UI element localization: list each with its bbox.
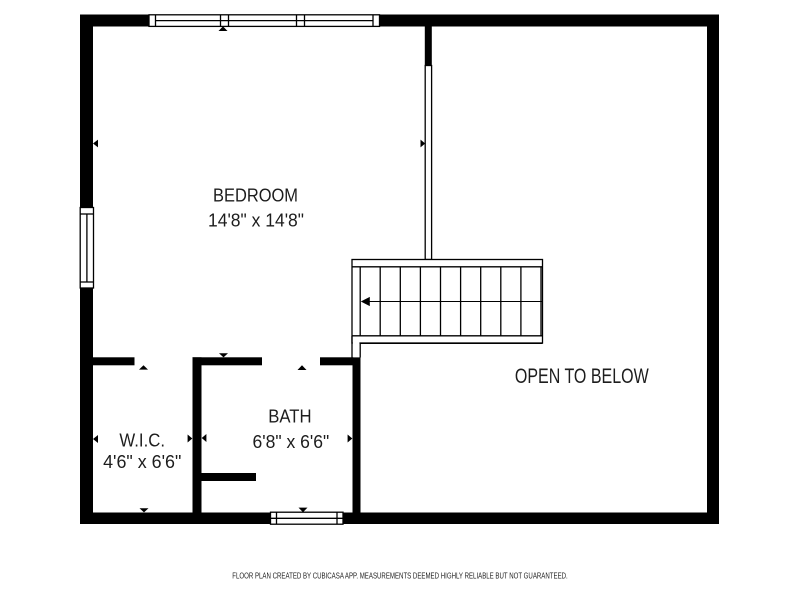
svg-text:BATH: BATH bbox=[268, 405, 311, 426]
svg-text:BEDROOM: BEDROOM bbox=[213, 185, 298, 206]
svg-text:4'6" x 6'6": 4'6" x 6'6" bbox=[103, 451, 181, 472]
svg-text:14'8" x 14'8": 14'8" x 14'8" bbox=[208, 210, 304, 231]
svg-text:OPEN TO BELOW: OPEN TO BELOW bbox=[515, 365, 649, 388]
svg-text:W.I.C.: W.I.C. bbox=[119, 429, 165, 450]
svg-text:FLOOR PLAN CREATED BY CUBICASA: FLOOR PLAN CREATED BY CUBICASA APP. MEAS… bbox=[232, 571, 568, 580]
svg-text:6'8" x 6'6": 6'8" x 6'6" bbox=[253, 431, 330, 452]
